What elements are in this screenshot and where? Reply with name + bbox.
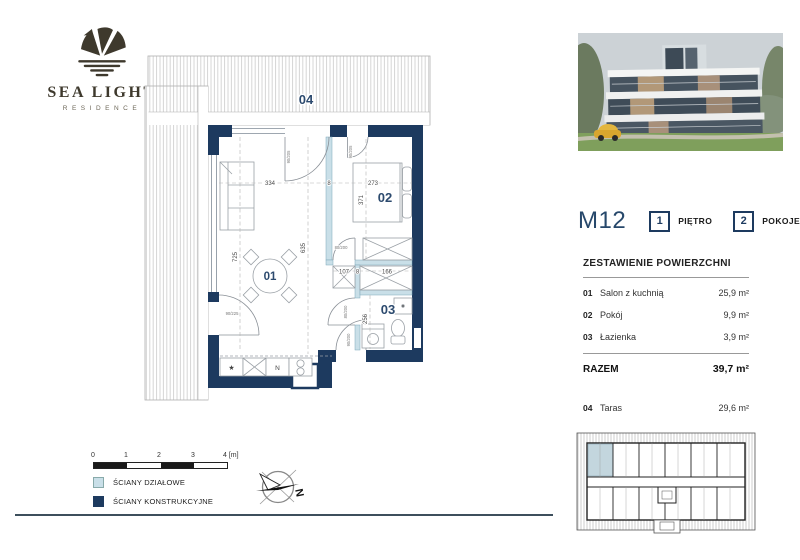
partition-wall-swatch [93, 477, 104, 488]
row-area: 9,9 m² [723, 310, 749, 320]
row-number: 04 [583, 403, 600, 413]
door-label-2: 90/205 [348, 145, 353, 158]
dim-371: 371 [359, 194, 365, 205]
rooms-number-box: 2 [733, 211, 754, 232]
table-row-terrace: 04 Taras 29,6 m² [583, 397, 749, 419]
door-label-3: 90/225 [226, 311, 239, 316]
unit-code: M12 [578, 207, 626, 235]
dim-635: 635 [301, 242, 307, 253]
scale-tick: 1 [124, 452, 128, 459]
room-label-bathroom: 03 [381, 302, 395, 317]
row-number: 02 [583, 310, 600, 320]
row-name: Pokój [600, 310, 623, 320]
total-label: RAZEM [583, 364, 619, 375]
compass: N [252, 460, 304, 512]
door-label-5: 80/200 [343, 305, 348, 318]
dim-273: 273 [368, 181, 379, 187]
dim-334: 334 [265, 181, 276, 187]
map-legend: 0 1 2 3 4 [m] ŚCIANY DZIAŁOWE ŚCIANY KON… [93, 452, 253, 507]
stair-core [658, 487, 676, 503]
legend-item-structural: ŚCIANY KONSTRUKCYJNE [93, 496, 253, 507]
scale-tick: 4 [m] [223, 452, 239, 459]
structural-wall-swatch [93, 496, 104, 507]
terrace-area [145, 56, 430, 400]
area-table: ZESTAWIENIE POWIERZCHNI 01 Salon z kuchn… [583, 258, 749, 419]
north-label: N [292, 488, 304, 498]
row-area: 3,9 m² [723, 332, 749, 342]
row-area: 25,9 m² [718, 288, 749, 298]
floor-label: PIĘTRO [678, 216, 712, 226]
highlighted-unit [588, 444, 613, 476]
room-label-bedroom: 02 [378, 190, 392, 205]
scale-tick: 3 [191, 452, 195, 459]
dim-256: 256 [363, 313, 369, 324]
door-label-4: 80/200 [335, 245, 348, 250]
table-row: 02 Pokój 9,9 m² [583, 304, 749, 326]
dishwasher-star-symbol: ★ [228, 364, 234, 372]
scale-bar [93, 462, 228, 469]
fridge-letter-symbol: N [275, 365, 280, 372]
scale-tick: 0 [91, 452, 95, 459]
scale-ticks: 0 1 2 3 4 [m] [93, 452, 253, 461]
dim-725: 725 [233, 251, 239, 262]
sun-sails-icon [70, 22, 134, 80]
legend-item-partition: ŚCIANY DZIAŁOWE [93, 477, 253, 488]
rooms-label: POKOJE [762, 216, 800, 226]
dim-166: 166 [382, 270, 393, 276]
floor-plan: 334 8 273 371 725 635 107 8 166 256 90/2… [142, 52, 442, 424]
legend-label: ŚCIANY DZIAŁOWE [113, 478, 185, 487]
row-name: Salon z kuchnią [600, 288, 664, 298]
unit-header: M12 1 PIĘTRO 2 POKOJE [578, 207, 800, 235]
table-row: 01 Salon z kuchnią 25,9 m² [583, 282, 749, 304]
row-area: 29,6 m² [718, 403, 749, 413]
scale-tick: 2 [157, 452, 161, 459]
area-table-title: ZESTAWIENIE POWIERZCHNI [583, 258, 749, 278]
building-photo [578, 33, 783, 151]
table-row: 03 Łazienka 3,9 m² [583, 326, 749, 348]
legend-label: ŚCIANY KONSTRUKCYJNE [113, 497, 213, 506]
row-number: 01 [583, 288, 600, 298]
wall-niche [414, 328, 421, 348]
row-name: Łazienka [600, 332, 636, 342]
total-area: 39,7 m² [713, 363, 749, 375]
dim-107: 107 [339, 270, 350, 276]
entrance-opening [336, 350, 366, 363]
floor-spec: 1 PIĘTRO [649, 211, 712, 232]
footer-divider [15, 514, 553, 516]
table-total-row: RAZEM 39,7 m² [583, 354, 749, 384]
row-name: Taras [600, 403, 622, 413]
room-label-terrace: 04 [299, 92, 314, 107]
key-plan [574, 430, 758, 536]
floor-number-box: 1 [649, 211, 670, 232]
room-label-living: 01 [264, 271, 277, 283]
rooms-spec: 2 POKOJE [733, 211, 800, 232]
row-number: 03 [583, 332, 600, 342]
door-label-6: 90/200 [346, 333, 351, 346]
door-label-1: 90/205 [286, 150, 291, 163]
